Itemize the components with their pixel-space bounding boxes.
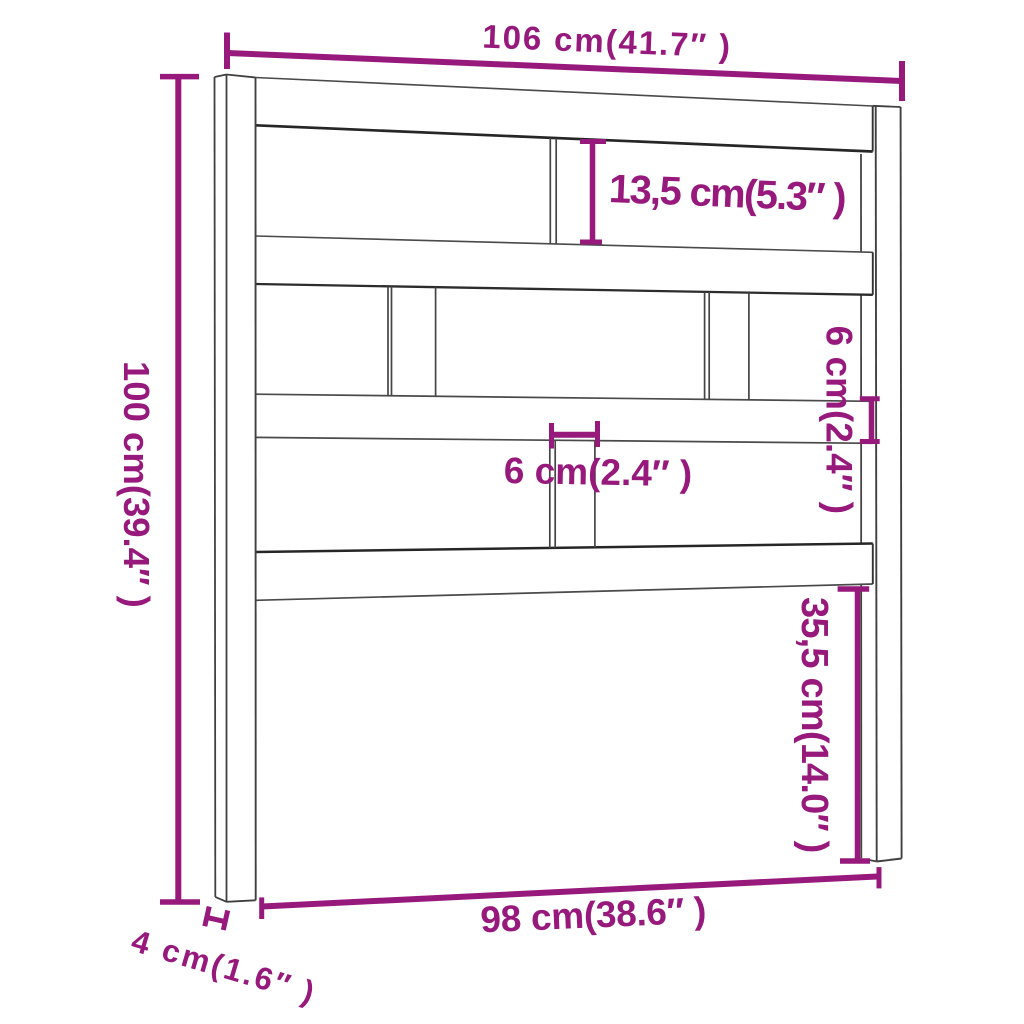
svg-text:6 cm(2.4″ ): 6 cm(2.4″ ) [503,450,692,494]
svg-text:6 cm(2.4″ ): 6 cm(2.4″ ) [819,326,860,514]
svg-text:100 cm(39.4″ ): 100 cm(39.4″ ) [116,361,157,608]
svg-text:35,5 cm(14.0″ ): 35,5 cm(14.0″ ) [793,597,835,852]
